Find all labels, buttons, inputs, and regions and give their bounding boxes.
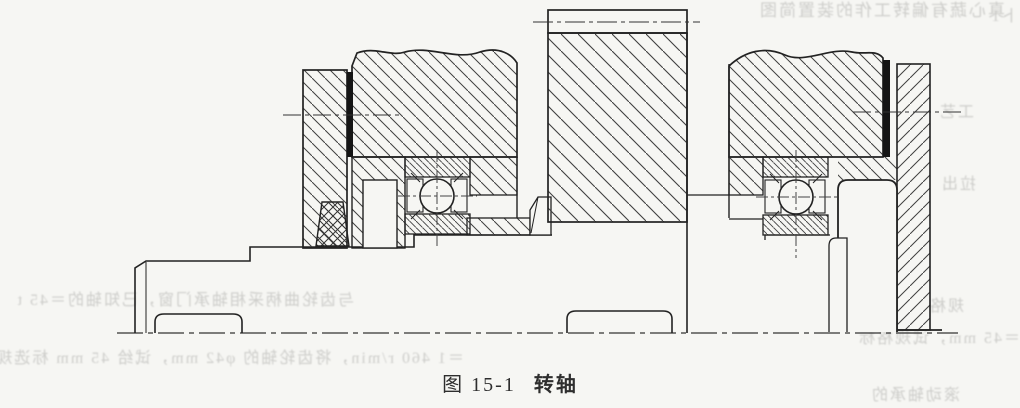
shaft-exit-rings: [829, 180, 897, 332]
gear-body: [548, 33, 687, 222]
shaft-assembly-drawing: [0, 0, 1020, 408]
scanned-page: 真心蔬有偏转工作的装置简图 卜1 与齿轮曲柄采相轴承门窗，已知轴的＝45 t ＝…: [0, 0, 1020, 408]
felt-seal-left: [316, 202, 349, 246]
figure-caption: 图 15-1转轴: [442, 368, 578, 397]
ball-bearing-right: [756, 150, 838, 258]
ball-bearing-left: [398, 150, 477, 246]
spacer-sleeve: [467, 197, 551, 235]
seal-spacer-ring-left: [363, 180, 397, 248]
bore-shoulder-right: [729, 157, 763, 195]
frame-wall: [897, 64, 930, 330]
keyway-under-gear: [567, 311, 672, 333]
bore-shoulder-left: [470, 157, 517, 195]
inner-step-ring: [829, 238, 847, 332]
cover-gasket-gap: [883, 60, 890, 157]
gear: [533, 10, 700, 222]
keyway-shaft-end: [155, 314, 242, 333]
figure-title: 转轴: [534, 374, 578, 396]
figure-number: 图 15-1: [442, 374, 516, 396]
